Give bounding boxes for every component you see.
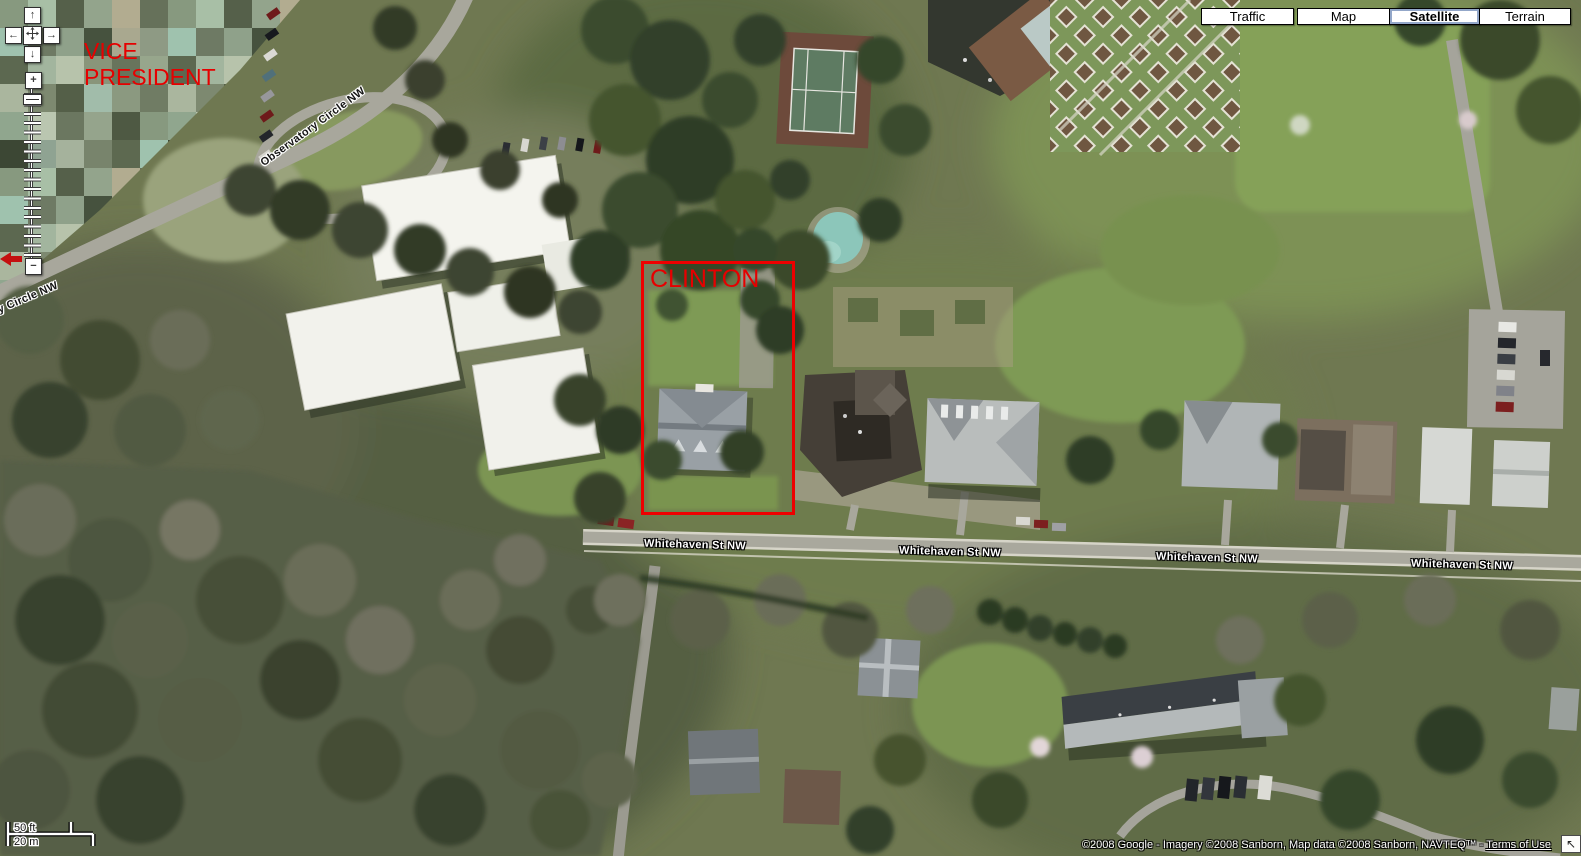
pan-left-button[interactable]: ← <box>5 27 22 44</box>
map-button[interactable]: Map <box>1297 8 1390 25</box>
pan-up-button[interactable]: ↑ <box>24 7 41 24</box>
scale-metric-label: 20 m <box>14 836 38 848</box>
map-viewport[interactable]: Observatory Circle NW ry Circle NW White… <box>0 0 1581 856</box>
pan-down-button[interactable]: ↓ <box>24 46 41 63</box>
satellite-button[interactable]: Satellite <box>1389 8 1480 25</box>
scale-bar: 50 ft 20 m <box>4 816 114 852</box>
attribution: ©2008 Google - Imagery ©2008 Sanborn, Ma… <box>1082 839 1551 851</box>
compass-icon <box>26 27 39 40</box>
terrain-button[interactable]: Terrain <box>1479 8 1571 25</box>
zoom-slider-handle[interactable] <box>23 94 42 105</box>
zoom-out-button[interactable]: − <box>25 258 42 275</box>
zoom-slider-ticks <box>24 90 41 258</box>
pan-center-button[interactable] <box>23 26 42 45</box>
clinton-highlight-box <box>641 261 795 515</box>
overview-map-toggle[interactable]: ↖ <box>1561 835 1581 853</box>
red-arrow-annotation <box>0 250 24 268</box>
scale-imperial-label: 50 ft <box>14 822 35 834</box>
terms-of-use-link[interactable]: Terms of Use <box>1486 839 1551 851</box>
traffic-button[interactable]: Traffic <box>1201 8 1294 25</box>
zoom-in-button[interactable]: + <box>25 72 42 89</box>
pan-right-button[interactable]: → <box>43 27 60 44</box>
red-arrow-shaft <box>9 256 22 262</box>
copyright-text: ©2008 Google - Imagery ©2008 Sanborn, Ma… <box>1082 839 1486 851</box>
